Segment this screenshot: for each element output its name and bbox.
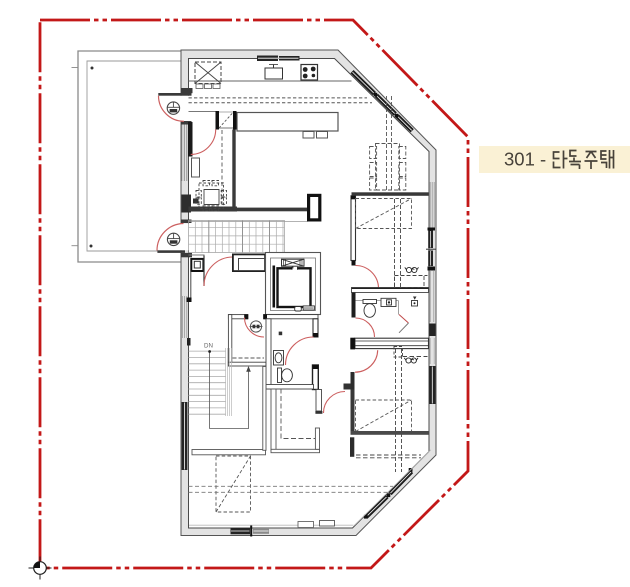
svg-text:301 -: 301 -	[504, 149, 546, 170]
svg-text:DN: DN	[204, 343, 213, 350]
